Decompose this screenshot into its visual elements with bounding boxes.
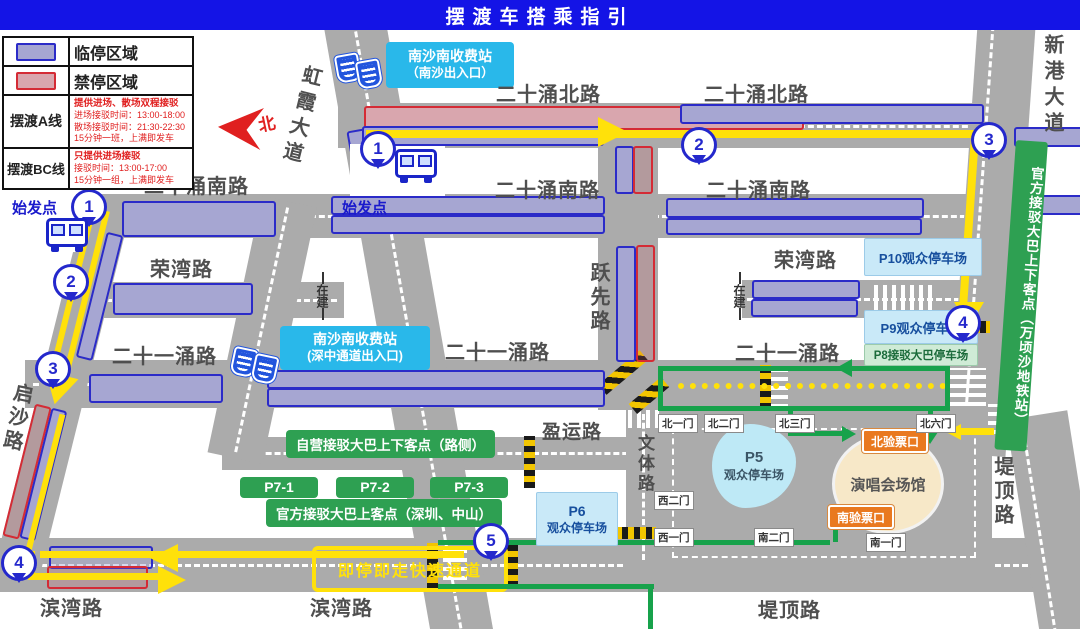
marker-number: 1 [84,197,93,217]
under-construction-marker: 在建 [314,272,331,320]
road-label-ershitongnan: 二十涌南路 [706,174,811,203]
gate-north-3: 北三门 [775,414,815,433]
road-label-ershitongbei: 二十涌北路 [496,78,601,107]
road-label-ershiyitong: 二十一涌路 [735,337,840,366]
line-bc-headline: 只提供进场接驳 [74,151,188,163]
road-label-yingyun: 盈运路 [542,417,602,444]
official-route [658,406,950,411]
parking-p7-2: P7-2 [336,477,414,498]
marker-number: 4 [958,313,967,333]
under-construction-marker: 在建 [731,272,748,320]
fast-lane-label: 即停即走快速通道 [338,557,482,581]
road-label-xingang: 新港大道 [1038,34,1067,138]
dotted-guide-line [678,383,946,389]
self-run-shuttle-stop: 自营接驳大巴上下客点（路侧） [286,430,495,458]
legend-temp-label: 临停区域 [68,38,192,66]
temp-parking-zone [122,201,276,237]
parking-p8-label: P8接驳大巴停车场 [874,347,969,363]
no-parking-zone [633,146,653,194]
parking-p6: P6 观众停车场 [536,492,618,546]
gate-label: 北二门 [708,418,740,430]
road-label-yuexian: 跃先路 [584,262,613,334]
temp-parking-zone [615,146,634,194]
legend-row-forbid: 禁停区域 [4,65,192,94]
official-route [658,366,663,411]
toll-station-shenzhong: 南沙南收费站 (深中通道出入口) [280,326,430,370]
marker-3: 3 [971,122,1007,158]
road-label-rongwan: 荣湾路 [774,244,837,273]
parking-p5-name: 观众停车场 [724,466,784,483]
line-a-label: 摆渡A线 [4,111,68,131]
toll-station-sub: (深中通道出入口) [280,349,430,365]
marker-4: 4 [945,305,981,341]
legend-row-temp: 临停区域 [4,38,192,65]
venue-label: 演唱会场馆 [850,474,925,495]
official-route [648,584,653,629]
official-route [658,366,950,371]
parking-p5-code: P5 [745,449,763,466]
parking-p7-1: P7-1 [240,477,318,498]
compass-north-label: 北 [256,109,278,137]
under-construction-label: 在建 [314,284,331,308]
road-label-diding-vertical: 堤顶路 [988,456,1017,528]
marker-2: 2 [53,264,89,300]
marker-number: 2 [66,272,75,292]
parking-p10: P10观众停车场 [864,238,982,276]
line-a-detail: 散场接驳时间：21:30-22:30 [74,122,188,134]
barrier-stripe [507,545,518,587]
start-point-label: 始发点 [342,197,387,218]
bus-icon [395,149,437,178]
official-pickup-stop: 官方接驳大巴上客点（深圳、中山） [266,499,502,527]
gate-label: 西一门 [658,532,690,544]
road-label-binwan: 滨湾路 [310,592,373,621]
temp-parking-zone [89,374,223,403]
line-a-detail: 15分钟一班，上满即发车 [74,133,188,145]
temp-parking-zone [616,246,636,362]
bus-icon [46,218,88,247]
south-ticket-label: 南验票口 [837,509,885,526]
marker-number: 3 [984,130,993,150]
barrier-stripe [524,436,535,488]
north-ticket-label: 北验票口 [871,433,919,450]
line-bc-detail: 接驳时间：13:00-17:00 [74,163,188,175]
parking-p6-code: P6 [568,503,585,519]
gate-west-1: 西一门 [654,528,694,547]
p7-1-label: P7-1 [264,479,294,495]
road-label-ershitongnan: 二十涌南路 [495,174,600,203]
temp-parking-zone [666,218,922,235]
parking-p10-label: P10观众停车场 [879,248,967,267]
metro-sign-label: 官方接驳大巴上下客点（万顷沙地铁站） [1011,165,1044,426]
gate-north-1: 北一门 [658,414,698,433]
road-label-ershiyitong: 二十一涌路 [112,340,217,369]
temp-parking-zone [267,388,605,407]
zebra-crossing [948,368,986,406]
south-ticket-check: 南验票口 [828,505,894,529]
marker-number: 1 [373,139,382,159]
legend: 临停区域 禁停区域 摆渡A线 提供进场、散场双程接驳 进场接驳时间：13:00-… [2,36,194,190]
shuttle-route-a-line [366,130,974,138]
marker-number: 2 [694,135,703,155]
self-run-shuttle-label: 自营接驳大巴上下客点（路侧） [296,438,485,453]
legend-row-line-bc: 摆渡BC线 只提供进场接驳 接驳时间：13:00-17:00 15分钟一组，上满… [4,147,192,188]
official-pickup-label: 官方接驳大巴上客点（深圳、中山） [276,507,492,522]
marker-4: 4 [1,545,37,581]
p7-3-label: P7-3 [454,479,484,495]
line-a-detail: 进场接驳时间：13:00-18:00 [74,110,188,122]
route-arrow-right-icon [598,117,628,147]
gate-north-2: 北二门 [704,414,744,433]
road-label-ershiyitong: 二十一涌路 [445,336,550,365]
gate-north-6: 北六门 [916,414,956,433]
start-point-label: 始发点 [12,197,57,218]
temp-parking-zone [751,299,858,317]
legend-forbid-label: 禁停区域 [68,67,192,95]
marker-1: 1 [360,131,396,167]
toll-station-name: 南沙南收费站 [386,48,514,66]
marker-number: 4 [14,553,23,573]
toll-station-name: 南沙南收费站 [280,331,430,349]
temp-parking-swatch [16,43,56,61]
gate-label: 南一门 [870,537,902,549]
gate-label: 南二门 [758,532,790,544]
road-label-wenti: 文体路 [632,434,657,494]
marker-number: 3 [48,359,57,379]
parking-p7-3: P7-3 [430,477,508,498]
road-label-hongxia: 虹霞大道 [274,62,327,170]
road-label-binwan: 滨湾路 [40,592,103,621]
marker-3: 3 [35,351,71,387]
page-title: 摆渡车搭乘指引 [0,0,1080,30]
gate-west-2: 西二门 [654,491,694,510]
shuttle-route-bc-line [28,573,160,580]
gate-south-1: 南一门 [866,533,906,552]
gate-label: 北一门 [662,418,694,430]
temp-parking-zone [680,104,984,124]
road-label-ershitongbei: 二十涌北路 [704,78,809,107]
gate-label: 北六门 [920,418,952,430]
no-parking-zone [636,245,655,362]
road-label-rongwan: 荣湾路 [150,253,213,282]
gate-south-2: 南二门 [754,528,794,547]
official-route [438,584,654,589]
temp-parking-zone [113,283,253,315]
gate-label: 北三门 [779,418,811,430]
under-construction-label: 在建 [731,284,748,308]
marker-2: 2 [681,127,717,163]
road-label-diding: 堤顶路 [758,594,821,623]
route-arrow-right-icon [158,566,186,594]
parking-p6-name: 观众停车场 [547,519,607,536]
route-arrow-right-icon [842,426,856,442]
p7-2-label: P7-2 [360,479,390,495]
zebra-crossing [628,410,662,428]
temp-parking-zone [752,280,860,299]
legend-row-line-a: 摆渡A线 提供进场、散场双程接驳 进场接驳时间：13:00-18:00 散场接驳… [4,94,192,147]
zebra-crossing [874,285,936,313]
temp-parking-zone [267,370,605,389]
line-bc-label: 摆渡BC线 [4,159,68,178]
no-parking-swatch [16,72,56,90]
toll-station-sub: （南沙出入口） [386,66,514,82]
marker-5: 5 [473,523,509,559]
shuttle-guide-map: 摆渡车搭乘指引 [0,0,1080,629]
gate-label: 西二门 [658,495,690,507]
toll-station-nansha: 南沙南收费站 （南沙出入口） [386,42,514,88]
line-bc-detail: 15分钟一组，上满即发车 [74,175,188,187]
expressway-shield-icon [355,58,383,90]
line-a-headline: 提供进场、散场双程接驳 [74,98,188,110]
metro-transfer-arrow [960,428,994,435]
marker-number: 5 [486,531,495,551]
